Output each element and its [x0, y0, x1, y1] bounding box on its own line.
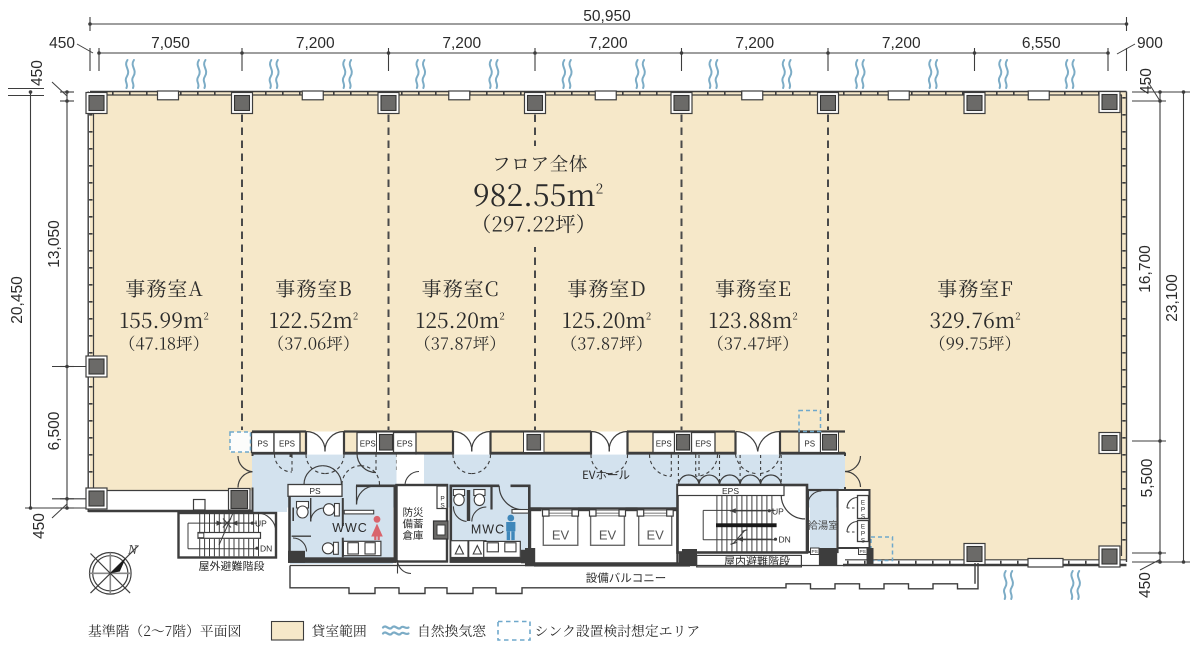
svg-text:P: P [861, 506, 865, 513]
svg-text:S: S [861, 537, 865, 544]
svg-text:5,500: 5,500 [1139, 458, 1156, 497]
svg-text:50,950: 50,950 [583, 8, 631, 25]
svg-text:PS: PS [859, 549, 865, 555]
svg-text:EPS: EPS [695, 440, 711, 449]
svg-text:6,500: 6,500 [46, 411, 63, 450]
svg-text:7,200: 7,200 [735, 35, 774, 52]
svg-text:EPS: EPS [360, 440, 376, 449]
svg-text:EV: EV [599, 528, 617, 543]
svg-text:EV: EV [647, 528, 665, 543]
svg-text:E: E [861, 523, 865, 530]
svg-text:EPS: EPS [656, 440, 672, 449]
svg-text:S: S [440, 503, 445, 510]
svg-text:7,200: 7,200 [442, 35, 481, 52]
svg-text:450: 450 [1138, 68, 1155, 94]
svg-text:PS: PS [309, 486, 321, 496]
svg-text:DN: DN [779, 535, 791, 545]
svg-text:16,700: 16,700 [1137, 245, 1154, 293]
svg-text:MWC: MWC [471, 523, 505, 537]
svg-text:PS: PS [257, 440, 268, 449]
svg-text:EPS: EPS [279, 440, 295, 449]
svg-text:7,200: 7,200 [296, 35, 335, 52]
svg-text:900: 900 [1137, 35, 1163, 52]
svg-text:PS: PS [804, 440, 815, 449]
svg-text:EV: EV [552, 528, 570, 543]
svg-text:450: 450 [31, 513, 48, 539]
svg-text:N: N [127, 542, 138, 557]
svg-text:P: P [440, 496, 444, 503]
svg-text:7,200: 7,200 [882, 35, 921, 52]
svg-text:S: S [861, 513, 865, 520]
svg-text:UP: UP [772, 506, 784, 516]
svg-text:450: 450 [29, 60, 46, 86]
svg-text:20,450: 20,450 [9, 276, 26, 324]
svg-text:P: P [861, 530, 865, 537]
svg-text:23,100: 23,100 [1164, 274, 1181, 322]
svg-text:UP: UP [255, 518, 267, 528]
svg-text:EPS: EPS [722, 486, 739, 496]
svg-text:7,050: 7,050 [151, 35, 190, 52]
svg-text:13,050: 13,050 [46, 220, 63, 268]
svg-text:7,200: 7,200 [589, 35, 628, 52]
svg-text:6,550: 6,550 [1022, 35, 1061, 52]
svg-text:EPS: EPS [397, 440, 413, 449]
svg-text:450: 450 [49, 35, 75, 52]
svg-text:E: E [861, 499, 865, 506]
svg-text:PS: PS [811, 549, 817, 555]
svg-text:DN: DN [260, 544, 272, 554]
svg-text:450: 450 [1137, 572, 1154, 598]
svg-text:WWC: WWC [332, 521, 368, 535]
